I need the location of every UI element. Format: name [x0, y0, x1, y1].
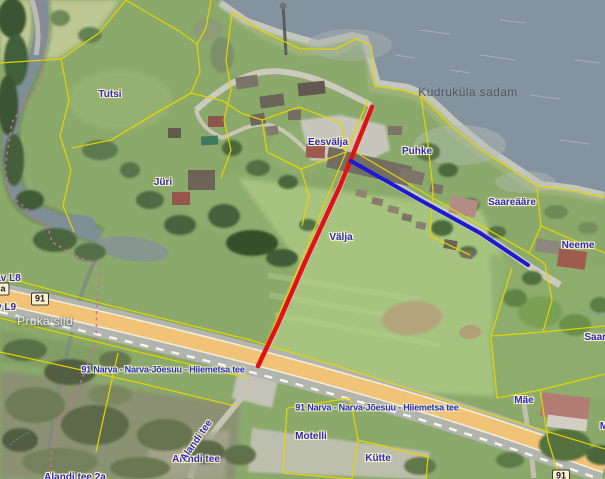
aerial-basemap [0, 0, 605, 479]
map-viewport[interactable]: Kudruküla sadam Pruka sild TutsiJüriEesv… [0, 0, 605, 479]
juri-house [188, 170, 215, 190]
